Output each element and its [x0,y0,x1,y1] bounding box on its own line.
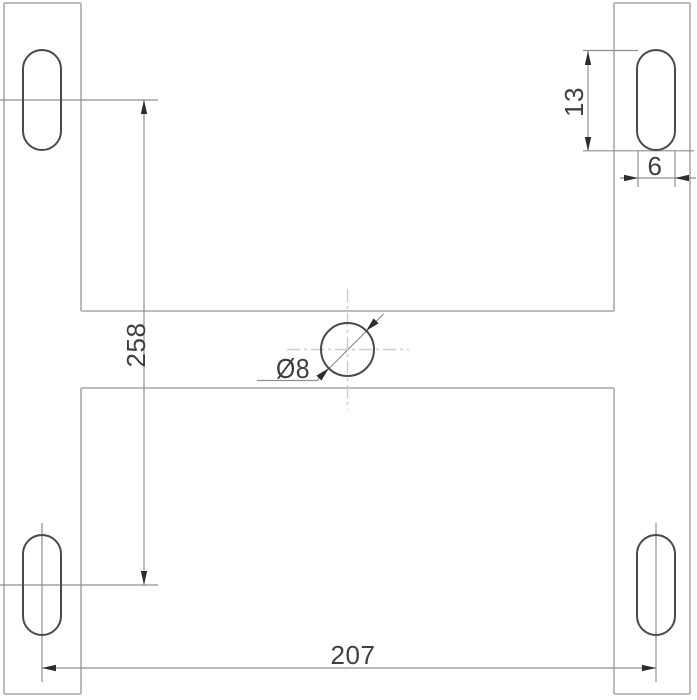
arrow-13-down [585,137,591,151]
dim-label-vertical-spacing: 258 [121,323,151,368]
technical-drawing-canvas: 258 207 13 6 Ø8 [0,0,697,700]
arrow-6-left [675,175,689,181]
arrow-6-right [624,175,638,181]
slot-top-right [637,50,675,150]
dimension-drawing: 258 207 13 6 Ø8 [0,0,697,700]
dim-label-horizontal-spacing: 207 [331,640,376,670]
dimension-labels: 258 207 13 6 Ø8 [121,87,662,670]
arrow-258-down [141,571,147,585]
arrow-207-left [42,665,56,671]
dim-label-slot-width: 6 [648,151,663,181]
dim-label-slot-length: 13 [559,87,589,117]
dim-label-hole-diameter: Ø8 [276,353,310,384]
arrow-258-up [141,100,147,114]
center-lines [287,289,409,410]
arrow-13-up [585,51,591,65]
arrow-207-right [642,665,656,671]
